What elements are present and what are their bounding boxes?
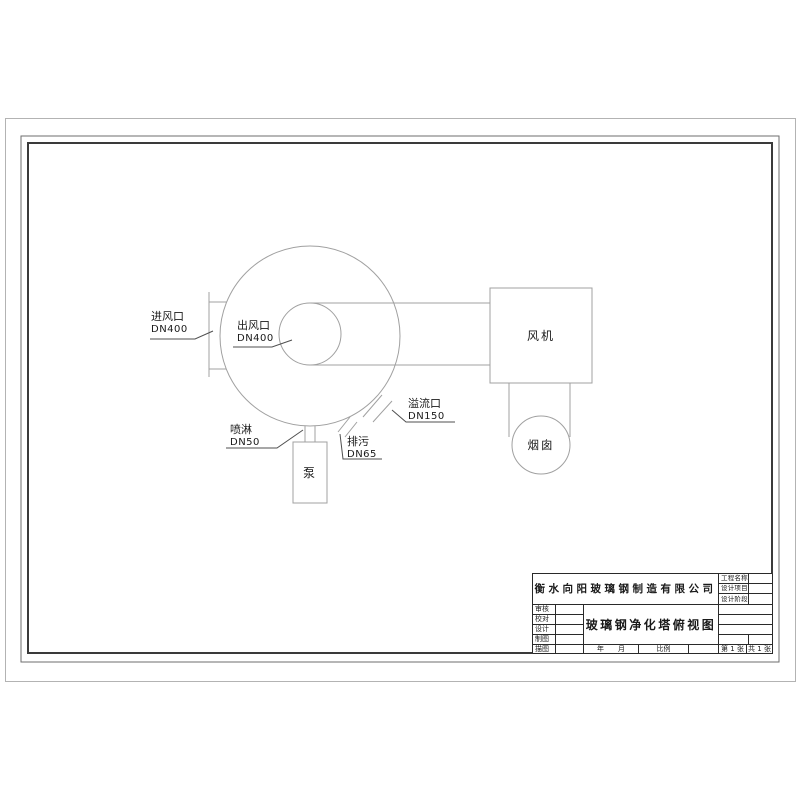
design-label: 设计 xyxy=(533,625,556,635)
proofread-label: 校对 xyxy=(533,615,556,625)
inlet-label-size: DN400 xyxy=(151,324,188,337)
project-name-value xyxy=(749,574,773,584)
draft-label: 制图 xyxy=(533,635,556,645)
outlet-label-size: DN400 xyxy=(237,333,274,346)
proofread-value xyxy=(556,615,584,625)
year-label: 年 xyxy=(597,646,604,653)
design-project-value xyxy=(749,584,773,594)
company-name: 衡水向阳玻璃钢制造有限公司 xyxy=(533,574,719,605)
spray-label: 喷淋 DN50 xyxy=(230,424,260,449)
sheet-number: 第 1 张 xyxy=(719,645,747,654)
tb-empty-row-1 xyxy=(719,605,773,615)
sheet-total: 共 1 张 xyxy=(747,645,773,654)
tb-empty-row-4b xyxy=(749,635,773,645)
spray-label-name: 喷淋 xyxy=(230,424,260,437)
scale-label: 比例 xyxy=(639,645,689,654)
schematic-svg xyxy=(0,0,800,800)
outlet-label: 出风口 DN400 xyxy=(237,320,274,345)
design-stage-label: 设计阶段 xyxy=(719,594,749,605)
tb-empty-row-4a xyxy=(719,635,749,645)
fan-label: 风机 xyxy=(490,288,592,383)
chimney-label: 烟囱 xyxy=(511,438,571,452)
overflow-label-size: DN150 xyxy=(408,411,445,424)
drain-label-name: 排污 xyxy=(347,436,377,449)
draft-value xyxy=(556,635,584,645)
drawing-title: 玻璃钢净化塔俯视图 xyxy=(584,605,719,645)
inlet-label: 进风口 DN400 xyxy=(151,311,188,336)
trace-value xyxy=(556,645,584,654)
overflow-label: 溢流口 DN150 xyxy=(408,398,445,423)
scale-value xyxy=(689,645,719,654)
drain-label: 排污 DN65 xyxy=(347,436,377,461)
date-cell: 年 月 xyxy=(584,645,639,654)
inlet-label-name: 进风口 xyxy=(151,311,188,324)
drain-label-size: DN65 xyxy=(347,449,377,462)
tb-empty-row-2 xyxy=(719,615,773,625)
outlet-circle xyxy=(279,303,341,365)
overflow-stub-line2 xyxy=(373,401,392,422)
review-label: 审核 xyxy=(533,605,556,615)
project-name-label: 工程名称 xyxy=(719,574,749,584)
month-label: 月 xyxy=(618,646,625,653)
overflow-label-name: 溢流口 xyxy=(408,398,445,411)
outlet-label-name: 出风口 xyxy=(237,320,274,333)
review-value xyxy=(556,605,584,615)
title-block: 衡水向阳玻璃钢制造有限公司 工程名称 设计项目 设计阶段 审核 校对 设计 制图… xyxy=(532,573,772,653)
design-value xyxy=(556,625,584,635)
pump-label: 泵 xyxy=(293,442,327,503)
trace-label: 描图 xyxy=(533,645,556,654)
design-project-label: 设计项目 xyxy=(719,584,749,594)
drawing-canvas: 进风口 DN400 出风口 DN400 喷淋 DN50 排污 DN65 溢流口 … xyxy=(0,0,800,800)
design-stage-value xyxy=(749,594,773,605)
tb-empty-row-3 xyxy=(719,625,773,635)
spray-label-size: DN50 xyxy=(230,437,260,450)
